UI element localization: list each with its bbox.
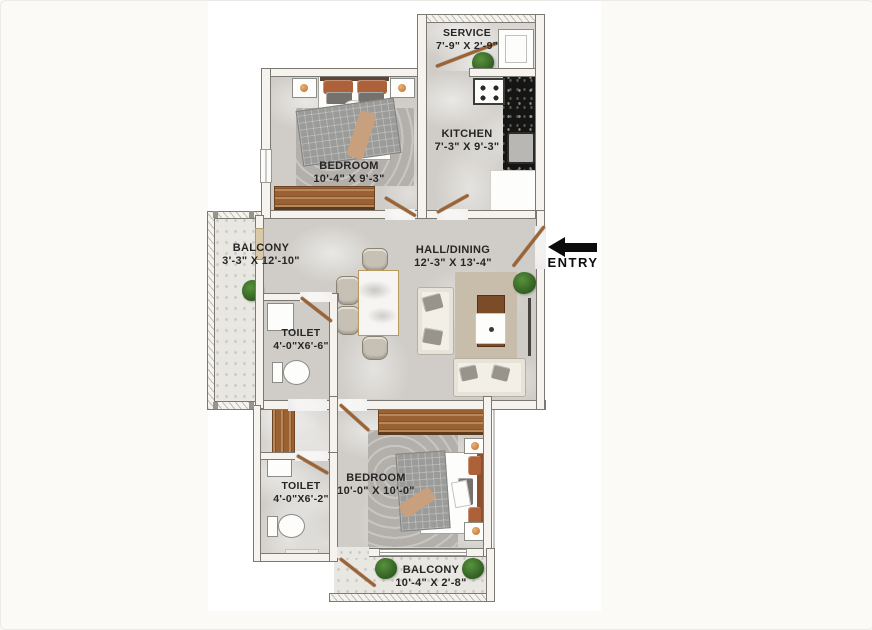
- lamp-icon: [300, 84, 308, 92]
- wall-bedroom1-left: [261, 68, 271, 219]
- kitchen-dims: 7'-3" X 9'-3": [435, 141, 500, 154]
- dining-chair: [362, 336, 388, 360]
- dining-chair: [362, 248, 388, 271]
- dining-chair: [336, 276, 360, 305]
- entry-label: ENTRY: [547, 255, 598, 270]
- floor-plan-screenshot: ENTRY SERVICE 7'-9" X 2'-9" KITCHEN 7'-3…: [0, 0, 872, 630]
- room-label-balcony2: BALCONY 10'-4" X 2'-8": [395, 564, 466, 590]
- toilet2-wc-bowl: [278, 514, 305, 538]
- kitchen-fridge-space: [490, 170, 536, 211]
- sofa-pillow: [422, 327, 443, 345]
- toilet1-wc-tank: [272, 362, 283, 383]
- stove-icon: [473, 78, 505, 105]
- toilet1-dims: 4'-0"X6'-6": [273, 340, 329, 353]
- passage-wardrobe: [272, 407, 295, 453]
- wall-service-top: [423, 14, 545, 23]
- wall-bedroom1-top: [261, 68, 425, 77]
- wall-toilet2-right: [329, 452, 338, 562]
- bedroom2-wardrobe: [378, 409, 486, 435]
- tv-console: [528, 298, 531, 356]
- kitchen-name: KITCHEN: [435, 128, 500, 141]
- toilet1-wc-bowl: [283, 360, 310, 385]
- wall-balcony2-right: [486, 548, 495, 602]
- bedroom2-dims: 10'-0" X 10'-0": [337, 485, 415, 498]
- lamp-icon: [398, 84, 406, 92]
- tray-decor: [489, 327, 494, 332]
- balcony2-dims: 10'-4" X 2'-8": [395, 577, 466, 590]
- bedroom1-window: [260, 149, 272, 183]
- bedroom2-name: BEDROOM: [337, 472, 415, 485]
- bedroom1-name: BEDROOM: [313, 160, 384, 173]
- toilet2-wc-tank: [267, 516, 278, 537]
- balcony1-name: BALCONY: [222, 242, 300, 255]
- railing-post: [249, 211, 254, 218]
- bedroom1-wardrobe: [274, 186, 375, 210]
- wall-bedroom2-right: [483, 396, 492, 557]
- room-label-service: SERVICE 7'-9" X 2'-9": [436, 27, 498, 52]
- room-label-toilet1: TOILET 4'-0"X6'-6": [273, 327, 329, 352]
- railing-post: [249, 402, 254, 409]
- entry-arrow-icon: [548, 237, 565, 257]
- service-dims: 7'-9" X 2'-9": [436, 40, 498, 53]
- lamp-icon: [471, 442, 479, 450]
- room-label-kitchen: KITCHEN 7'-3" X 9'-3": [435, 128, 500, 154]
- railing-post: [213, 402, 218, 409]
- dining-chair: [336, 306, 360, 335]
- room-label-bedroom1: BEDROOM 10'-4" X 9'-3": [313, 160, 384, 186]
- dining-table: [358, 270, 399, 336]
- entry-arrow-shaft: [564, 243, 597, 252]
- bedroom1-dims: 10'-4" X 9'-3": [313, 173, 384, 186]
- toilet1-name: TOILET: [273, 327, 329, 340]
- balcony1-dims: 3'-3" X 12'-10": [222, 255, 300, 268]
- wall-passage-bedroom2: [329, 396, 338, 456]
- wall-kitchen-right: [535, 14, 545, 219]
- kitchen-sink-icon: [507, 132, 535, 164]
- bedroom2-balcony-window: [379, 549, 467, 556]
- balcony2-door-gap: [337, 547, 369, 558]
- wall-toilet2-bottom: [255, 553, 335, 562]
- hall-name: HALL/DINING: [414, 244, 492, 257]
- wall-toilet1-right: [329, 293, 338, 403]
- balcony2-name: BALCONY: [395, 564, 466, 577]
- hall-dims: 12'-3" X 13'-4": [414, 257, 492, 270]
- toilet2-dims: 4'-0"X6'-2": [273, 493, 329, 506]
- passage-gap: [288, 399, 327, 411]
- railing-post: [213, 211, 218, 218]
- service-sink-basin: [505, 35, 527, 63]
- room-label-balcony1: BALCONY 3'-3" X 12'-10": [222, 242, 300, 268]
- wall-balcony2-bottom: [329, 593, 495, 602]
- toilet2-name: TOILET: [273, 480, 329, 493]
- bedroom2-window-grill: [493, 408, 495, 555]
- wall-toilet2-left: [253, 405, 261, 562]
- wall-balcony1-left: [207, 211, 215, 410]
- wall-service-kitchen: [469, 68, 545, 77]
- service-name: SERVICE: [436, 27, 498, 40]
- wall-kitchen-left: [417, 14, 427, 219]
- lamp-icon: [472, 527, 480, 535]
- room-label-hall: HALL/DINING 12'-3" X 13'-4": [414, 244, 492, 270]
- room-label-bedroom2: BEDROOM 10'-0" X 10'-0": [337, 472, 415, 498]
- bedroom2-pillow: [468, 456, 481, 475]
- room-label-toilet2: TOILET 4'-0"X6'-2": [273, 480, 329, 505]
